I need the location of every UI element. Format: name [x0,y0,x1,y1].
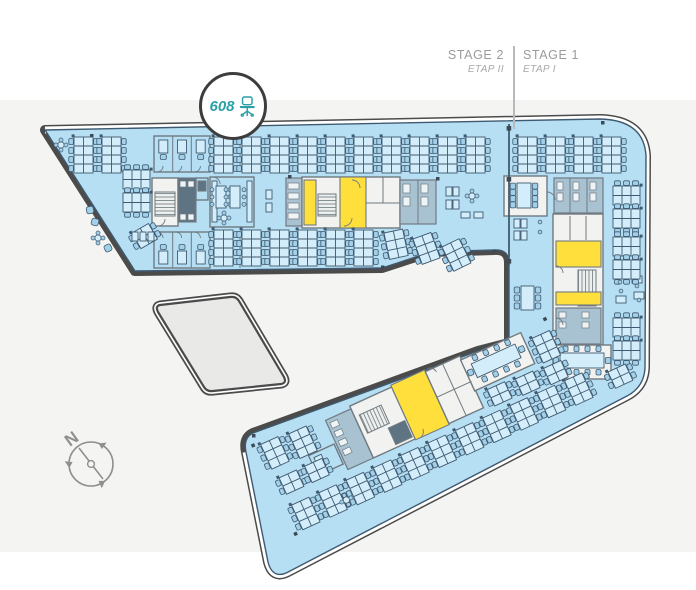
stage-1-title: STAGE 1 [523,48,579,62]
meeting-table [210,186,232,208]
stage-1-subtitle: ETAP I [523,64,579,76]
stage-1-label: STAGE 1 ETAP I [523,48,579,76]
meeting-table [510,183,538,208]
desk-cluster [123,188,153,217]
floor-plan-canvas[interactable]: N [0,0,696,590]
stage-2-label: STAGE 2 ETAP II [448,48,504,76]
marker-room-number: 608 [209,98,234,115]
stage-divider-line [513,46,515,129]
office-chair-icon [238,95,257,118]
meeting-table [514,286,541,310]
stage-2-title: STAGE 2 [448,48,504,62]
desk-cluster [613,336,643,365]
stage-2-subtitle: ETAP II [448,64,504,76]
desk-cluster [613,255,643,284]
floorplan-viewer: N STAGE 2 ETAP II STAGE 1 ETAP I 608 [0,0,696,590]
desk-cluster [613,204,643,233]
room-marker[interactable]: 608 [199,72,267,140]
meeting-table [224,186,246,208]
